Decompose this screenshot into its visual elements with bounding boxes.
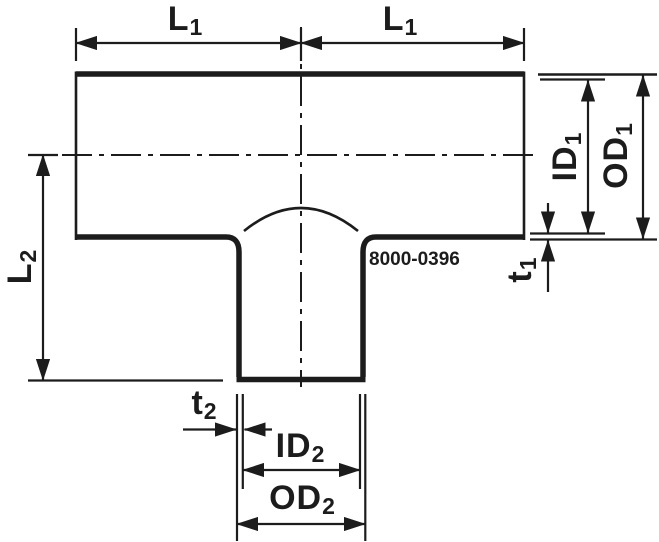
- l1-right-label: L1: [383, 0, 418, 40]
- t2-label: t2: [191, 384, 216, 424]
- t1-label: t1: [501, 257, 541, 282]
- pipe-bottom-left-and-branch-left-wall: [76, 237, 239, 377]
- extension-lines: [28, 28, 657, 541]
- diagram-canvas: L1 L1 L2 ID1 OD1 t1 t2 ID2 OD2 8000-0396: [0, 0, 659, 542]
- dimension-labels: L1 L1 L2 ID1 OD1 t1 t2 ID2 OD2 8000-0396: [1, 0, 637, 519]
- l2-label: L2: [1, 250, 41, 285]
- tee-fitting-diagram: L1 L1 L2 ID1 OD1 t1 t2 ID2 OD2 8000-0396: [0, 0, 659, 542]
- dimension-lines: [43, 43, 643, 524]
- id2-label: ID2: [276, 427, 325, 467]
- l1-left-label: L1: [168, 0, 203, 40]
- part-number: 8000-0396: [369, 249, 460, 270]
- id1-label: ID1: [546, 132, 586, 181]
- od2-label: OD2: [269, 479, 335, 519]
- od1-label: OD1: [597, 123, 637, 189]
